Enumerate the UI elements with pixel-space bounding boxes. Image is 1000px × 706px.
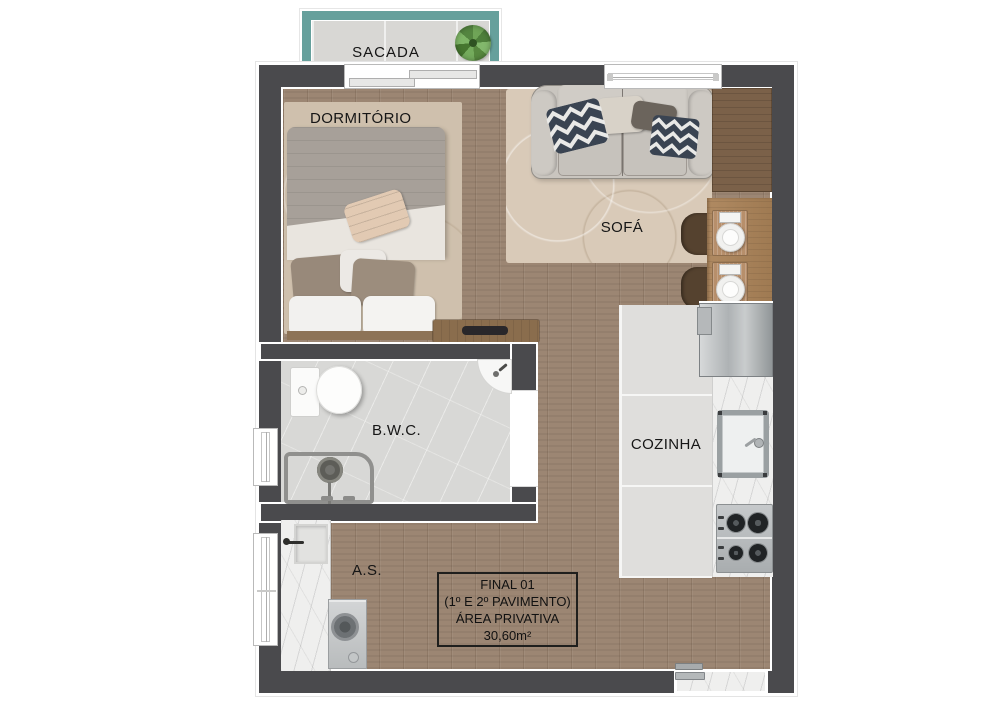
cooktop-knob	[718, 527, 724, 530]
plant-center	[469, 39, 477, 47]
bed-pillow	[363, 296, 435, 336]
info-area-label: ÁREA PRIVATIVA	[439, 610, 576, 627]
sink-corner	[763, 473, 767, 477]
bedroom-label: DORMITÓRIO	[310, 111, 412, 126]
burner	[747, 512, 769, 534]
sink-corner	[718, 411, 722, 415]
corner-sink-drain	[493, 371, 499, 377]
entry-door-handle	[675, 663, 703, 670]
laundry-window	[253, 533, 278, 646]
info-unit: FINAL 01	[439, 576, 576, 593]
napkin	[719, 264, 741, 275]
cooktop-knob	[718, 516, 724, 519]
bathroom-window	[253, 428, 278, 486]
washer-knob	[348, 652, 359, 663]
entry-door-handle	[675, 672, 705, 680]
bed-headboard	[287, 331, 445, 340]
cooktop-divider	[717, 537, 772, 539]
plate	[716, 275, 745, 304]
toilet-button	[298, 386, 307, 395]
living-label: SOFÁ	[572, 220, 672, 235]
burner	[748, 543, 768, 563]
cooktop-knob	[718, 557, 724, 560]
bathroom-wall-bottom	[261, 504, 536, 521]
shower-head	[317, 457, 343, 483]
bathroom-label: B.W.C.	[281, 423, 512, 438]
toilet-bowl	[316, 366, 362, 414]
info-box: FINAL 01 (1º E 2º PAVIMENTO) ÁREA PRIVAT…	[437, 572, 578, 647]
washer-drum	[331, 613, 359, 641]
burner	[728, 545, 744, 561]
burner	[726, 513, 746, 533]
chevron-pillow	[649, 113, 700, 162]
bathroom-wall-top	[261, 344, 536, 359]
laundry-faucet-knob	[283, 538, 290, 545]
laundry-sink	[294, 524, 328, 564]
small-appliance	[697, 307, 712, 335]
shower-tap	[343, 496, 355, 501]
kitchen-label: COZINHA	[620, 437, 712, 452]
bathroom-door-opening	[510, 390, 538, 487]
bed-pillow	[289, 296, 361, 336]
sink-corner	[718, 473, 722, 477]
sink-corner	[763, 411, 767, 415]
tv-icon	[462, 326, 508, 335]
laundry-label: A.S.	[352, 563, 382, 578]
balcony-sliding-door	[344, 64, 480, 89]
napkin	[719, 212, 741, 223]
cooktop-knob	[718, 546, 724, 549]
floor-plan: SACADA DORMITÓRIO SOFÁ	[0, 0, 1000, 706]
info-floors: (1º E 2º PAVIMENTO)	[439, 593, 576, 610]
info-area-value: 30,60m²	[439, 627, 576, 644]
shower-tap	[321, 496, 333, 501]
plate	[716, 223, 745, 252]
living-window	[604, 64, 722, 89]
balcony-label: SACADA	[311, 45, 461, 60]
sideboard-cabinet	[712, 88, 772, 192]
